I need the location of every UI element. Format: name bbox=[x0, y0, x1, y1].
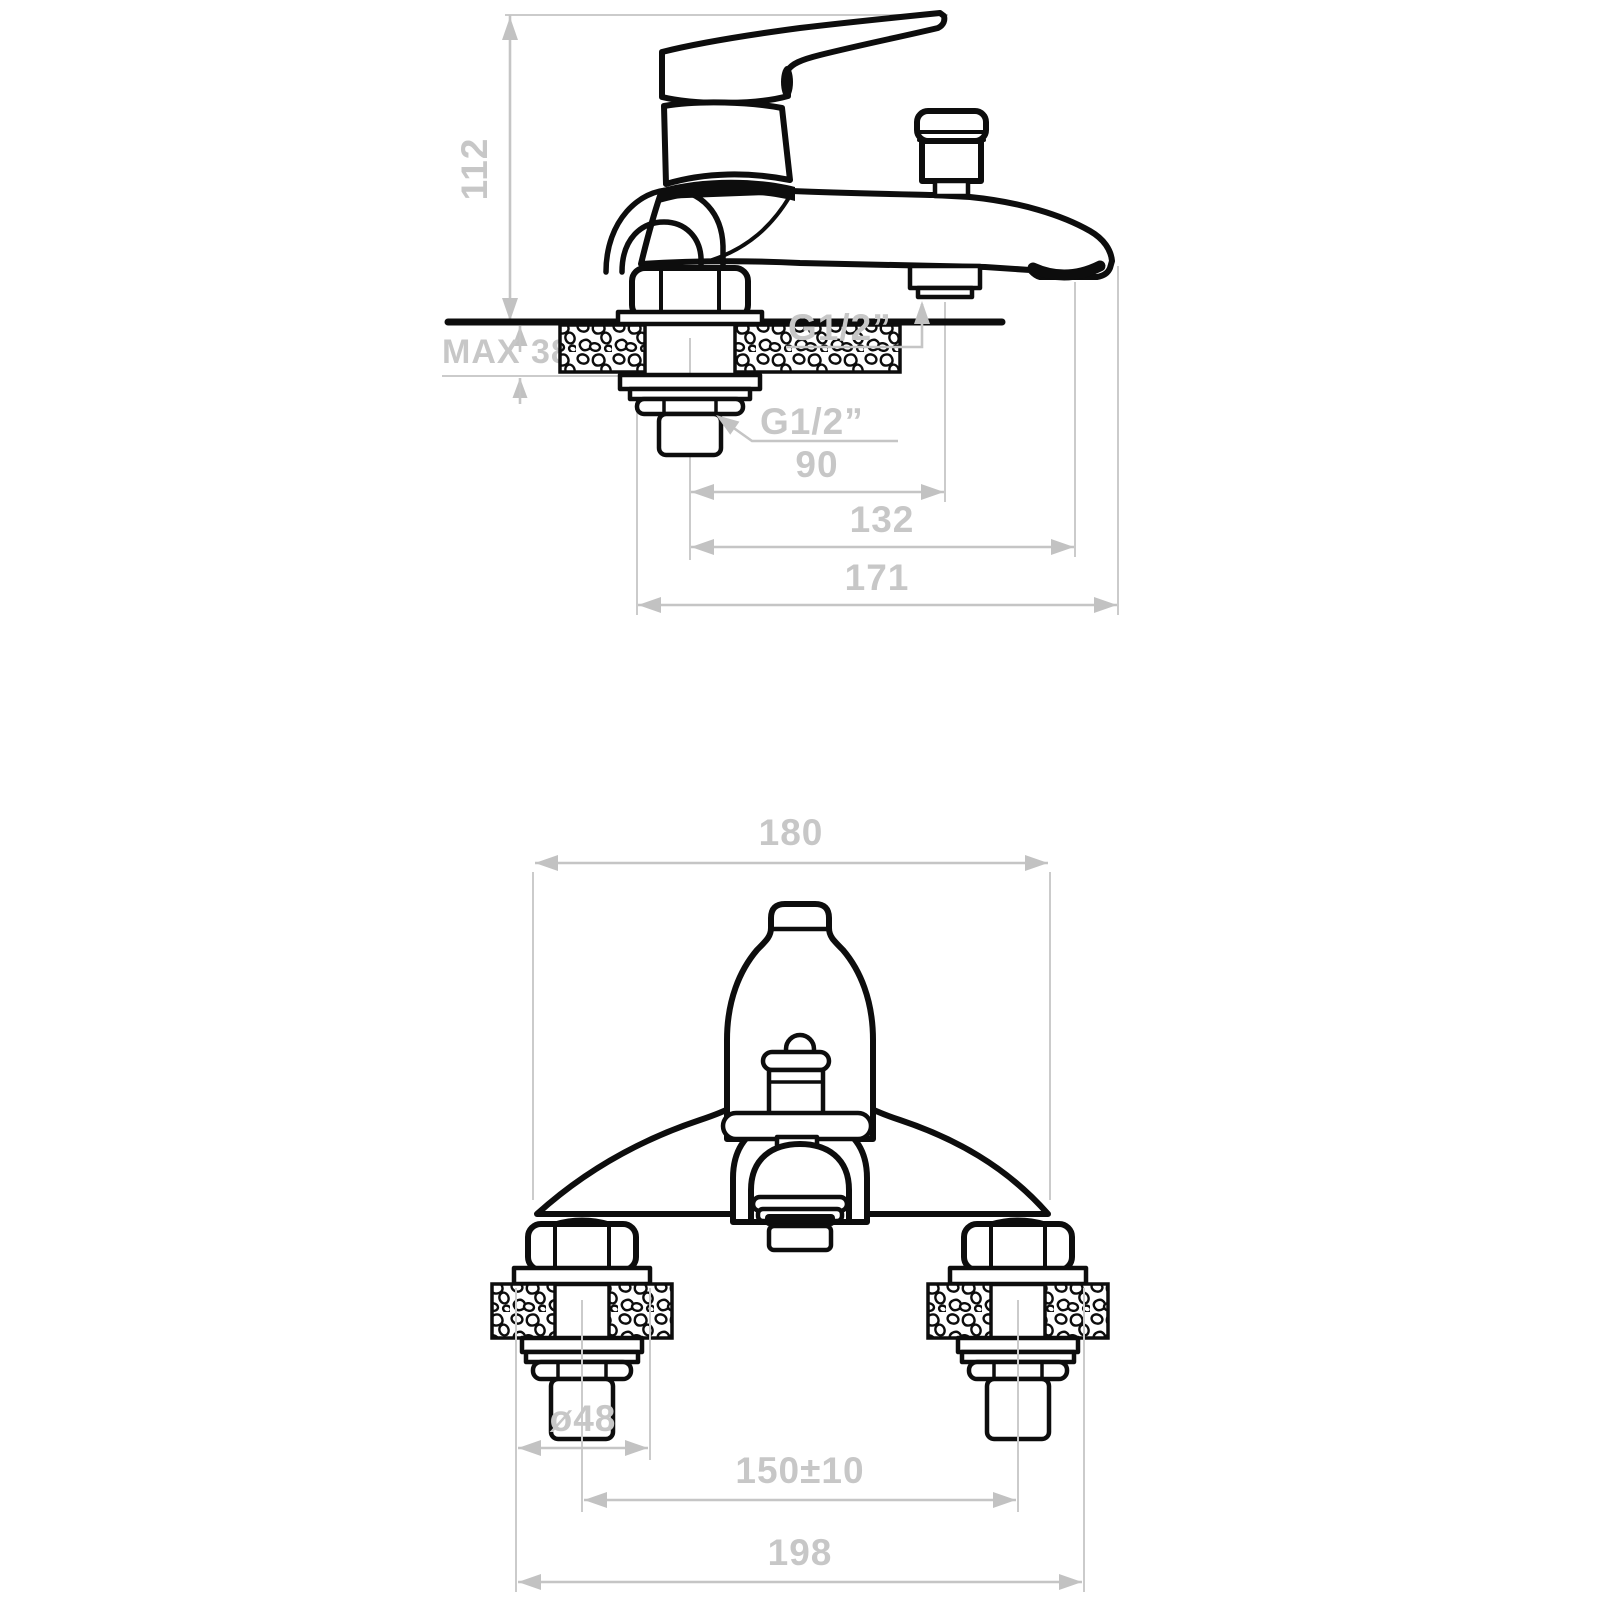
dim-height-label: 112 bbox=[454, 138, 495, 201]
dim-deck-max-label: MAX 38 bbox=[442, 333, 571, 371]
thread-inlet-tail-label: G1/2” bbox=[760, 401, 864, 442]
side-view: 112 MAX 38 bbox=[442, 13, 1118, 615]
technical-drawing-svg: 112 MAX 38 bbox=[0, 0, 1600, 1600]
diagram-canvas: 112 MAX 38 bbox=[0, 0, 1600, 1600]
dim-171-label: 171 bbox=[845, 557, 910, 598]
thread-shower-outlet-label: G1/2” bbox=[788, 307, 892, 348]
diverter-knob-cap bbox=[917, 111, 986, 141]
handle-dome-outline bbox=[664, 102, 790, 184]
diverter-knob-neck bbox=[935, 181, 968, 196]
side-deck-hatch-left bbox=[560, 325, 645, 372]
dim-inlet-centres-label: 150±10 bbox=[735, 1450, 864, 1491]
dim-180-label: 180 bbox=[759, 812, 824, 853]
side-threaded-tail bbox=[659, 414, 721, 455]
shower-outlet-lip bbox=[918, 288, 972, 297]
front-outlet-thread bbox=[769, 1226, 831, 1250]
dim-132-label: 132 bbox=[850, 499, 915, 540]
dim-90-label: 90 bbox=[795, 444, 838, 485]
front-view-drawing bbox=[492, 904, 1108, 1439]
mixer-body-outline bbox=[641, 191, 1112, 277]
lever-pivot-notch bbox=[781, 66, 793, 98]
diverter-knob-body bbox=[922, 141, 981, 181]
dim-overall-width-label: 198 bbox=[768, 1532, 833, 1573]
dim-flange-diameter-label: ø48 bbox=[550, 1398, 617, 1439]
side-view-drawing bbox=[448, 13, 1112, 455]
shower-outlet bbox=[910, 266, 980, 288]
lever-handle-outline bbox=[662, 13, 944, 103]
front-view: 180 bbox=[492, 812, 1108, 1592]
front-cartridge-ring bbox=[763, 1052, 829, 1070]
side-base-flange bbox=[618, 312, 762, 324]
